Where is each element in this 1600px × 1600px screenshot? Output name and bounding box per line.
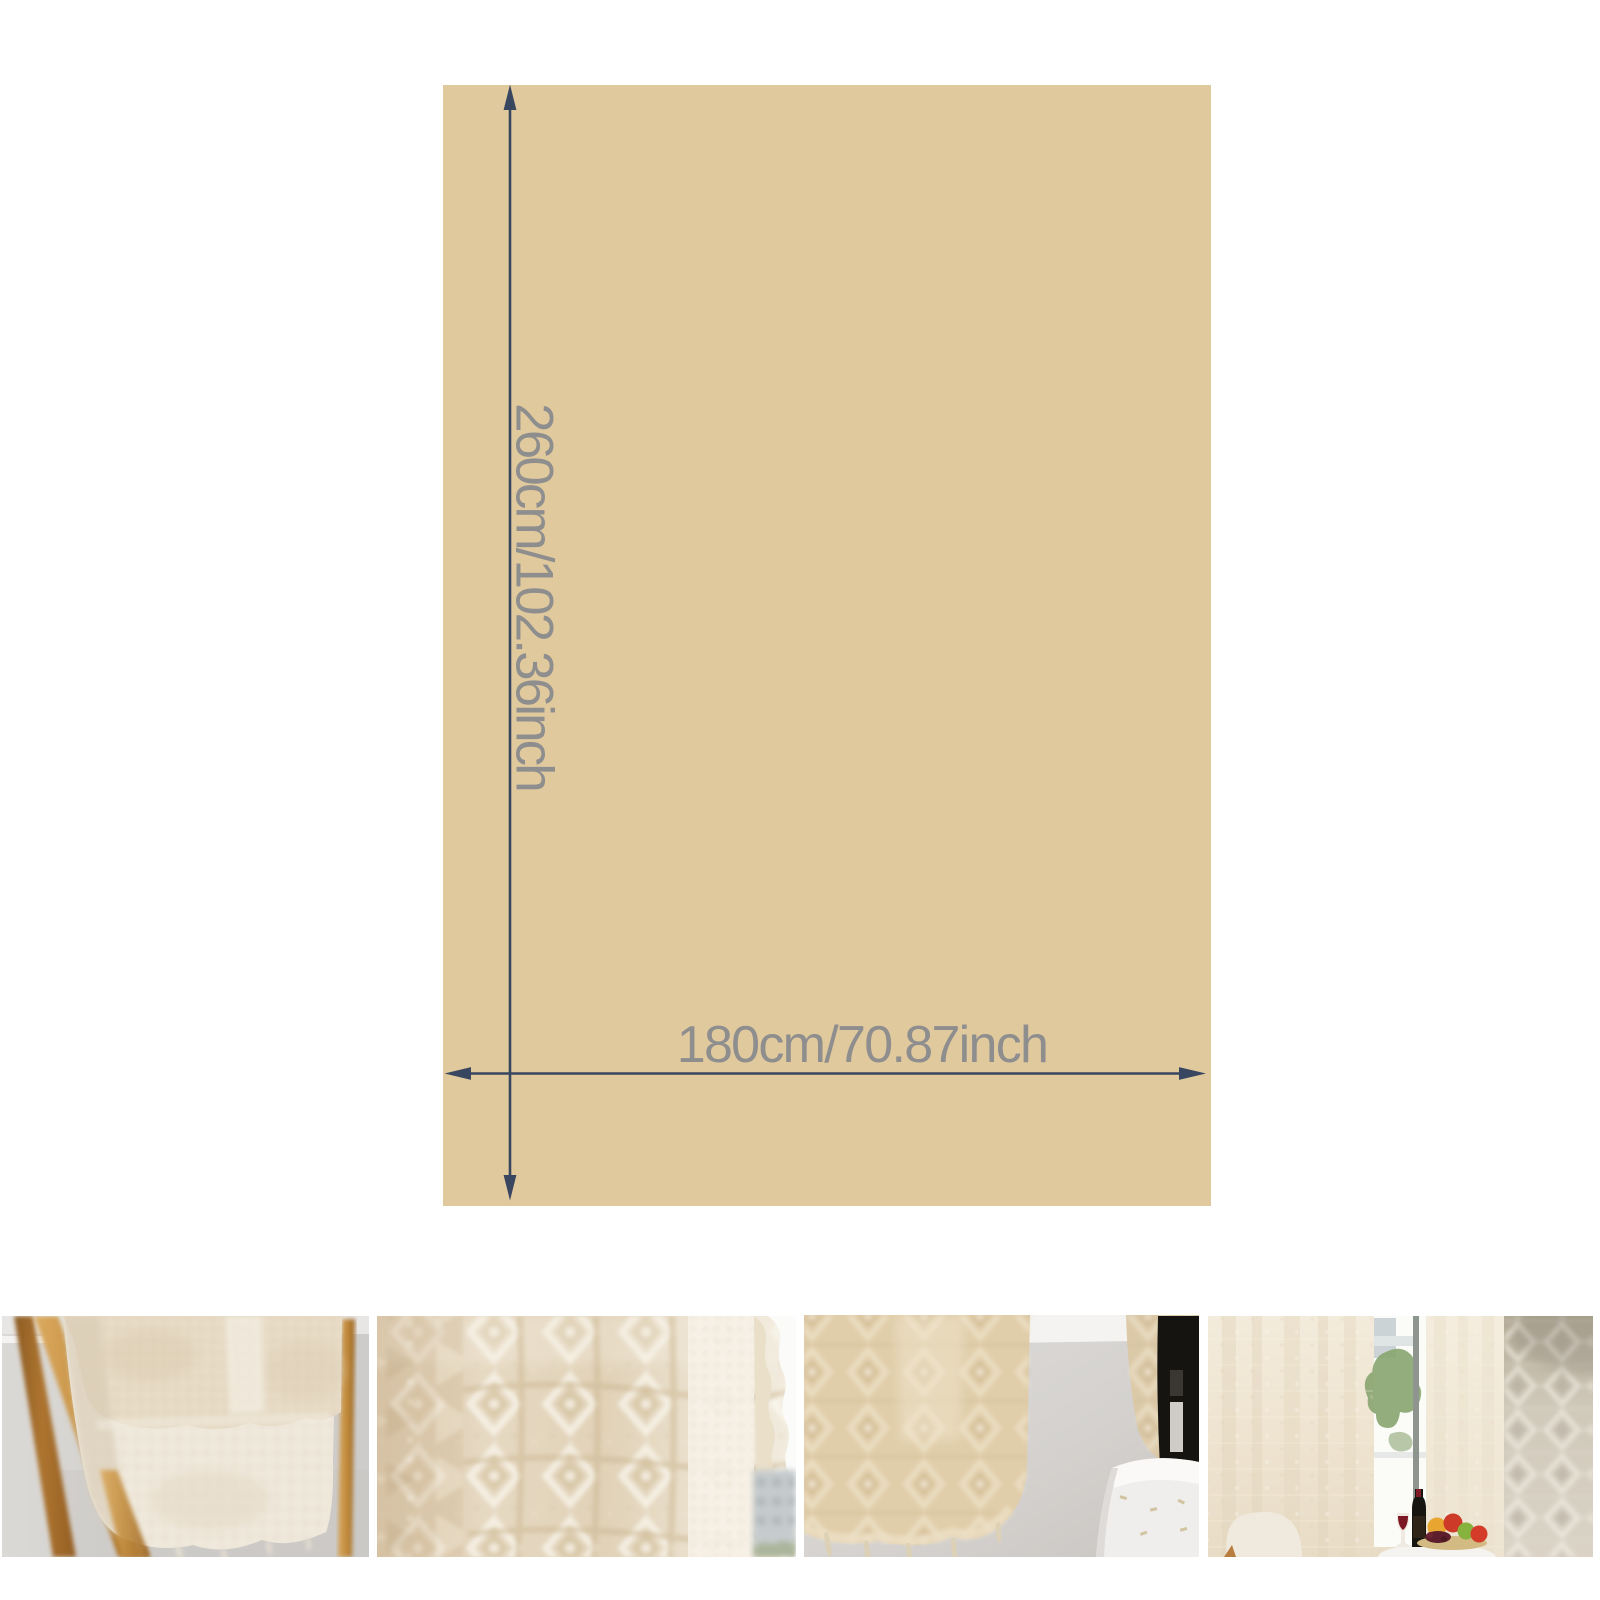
svg-text:180cm/70.87inch: 180cm/70.87inch — [677, 1016, 1048, 1074]
svg-text:260cm/102.36inch: 260cm/102.36inch — [505, 403, 564, 790]
